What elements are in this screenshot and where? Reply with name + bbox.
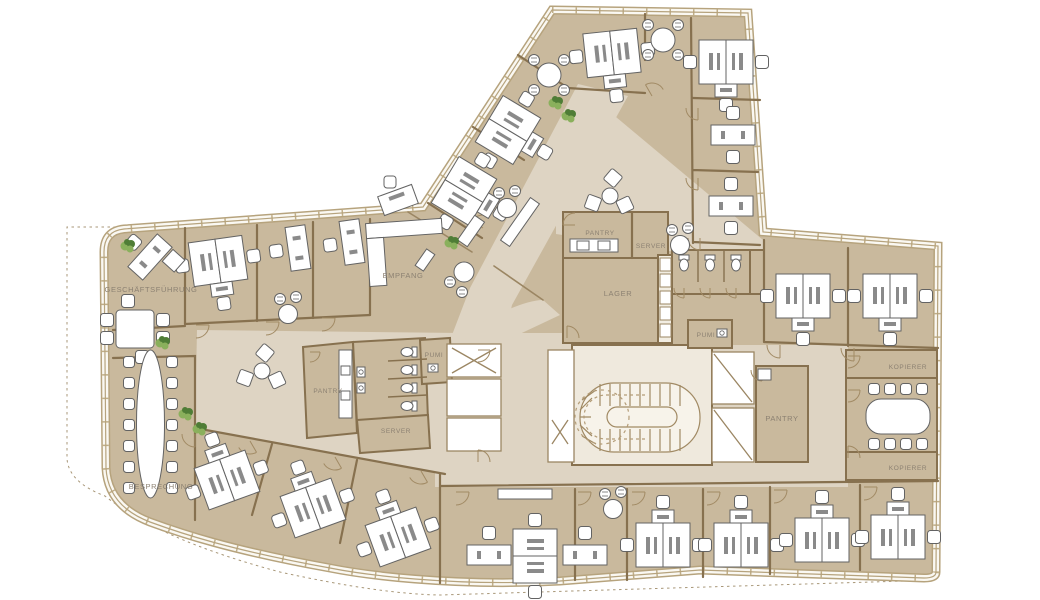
room-label-server-lower: SERVER xyxy=(381,428,411,435)
chair xyxy=(901,384,912,395)
monitor-icon xyxy=(657,515,669,519)
chair xyxy=(917,384,928,395)
monitor-icon xyxy=(717,53,720,70)
monitor-icon xyxy=(884,322,896,326)
stool xyxy=(643,20,654,31)
monitor-icon xyxy=(741,131,745,139)
chair xyxy=(727,151,740,164)
chair xyxy=(735,496,748,509)
toilet-icon xyxy=(705,255,715,271)
toilet-icon xyxy=(401,383,417,393)
toilet-icon xyxy=(401,401,417,411)
stool xyxy=(667,225,678,236)
monitor-icon xyxy=(754,537,758,554)
monitor-icon xyxy=(669,537,672,554)
chair xyxy=(892,488,905,501)
monitor-icon xyxy=(709,53,713,70)
staircase xyxy=(575,383,700,452)
pantry-cabinet xyxy=(758,369,771,380)
stool xyxy=(291,292,302,303)
sink-icon xyxy=(357,383,365,393)
monitor-icon xyxy=(527,539,544,543)
chair xyxy=(869,439,880,450)
chair xyxy=(101,332,114,345)
chair xyxy=(124,441,135,452)
monitor-icon xyxy=(892,507,904,511)
chair xyxy=(833,290,846,303)
room-shaft-upper xyxy=(750,250,764,294)
room-lager xyxy=(563,258,658,343)
chair xyxy=(246,249,261,264)
chair xyxy=(101,314,114,327)
sink-icon xyxy=(717,329,727,337)
duct-cells xyxy=(660,258,671,337)
chair xyxy=(856,531,869,544)
chair xyxy=(167,378,178,389)
chair xyxy=(727,107,740,120)
chair xyxy=(122,295,135,308)
stool xyxy=(616,487,627,498)
monitor-icon xyxy=(904,529,907,546)
chair xyxy=(384,176,396,188)
monitor-icon xyxy=(805,532,809,549)
monitor-icon xyxy=(816,287,820,304)
room-label-pumi-lower: PUMI xyxy=(425,352,444,359)
monitor-icon xyxy=(732,53,735,70)
toilet-icon xyxy=(401,347,417,357)
chair xyxy=(157,314,170,327)
toilet-icon xyxy=(401,365,417,375)
monitor-icon xyxy=(646,537,650,554)
monitor-icon xyxy=(881,529,885,546)
chair xyxy=(483,527,496,540)
room-label-pantry-right: PANTRY xyxy=(765,414,798,423)
monitor-icon xyxy=(676,537,680,554)
stool xyxy=(510,186,521,197)
room-label-pantry-lower: PANTRY xyxy=(313,388,342,395)
chair xyxy=(884,333,897,346)
stool xyxy=(275,294,286,305)
stool xyxy=(600,489,611,500)
chair xyxy=(217,296,232,311)
floor-plan-canvas: GESCHÄFTSFÜHRUNG EMPFANG BESPRECHUNG PAN… xyxy=(0,0,1040,600)
chair xyxy=(920,290,933,303)
monitor-icon xyxy=(903,287,907,304)
room-label-pumi-upper: PUMI xyxy=(697,332,716,339)
toilet-icon xyxy=(679,255,689,271)
monitor-icon xyxy=(739,53,743,70)
chair xyxy=(848,290,861,303)
chair xyxy=(529,514,542,527)
chair xyxy=(124,399,135,410)
monitor-icon xyxy=(527,569,544,573)
floor-plan-page: GESCHÄFTSFÜHRUNG EMPFANG BESPRECHUNG PAN… xyxy=(0,0,1040,600)
chair xyxy=(167,441,178,452)
chair xyxy=(885,384,896,395)
chair xyxy=(124,420,135,431)
monitor-icon xyxy=(477,551,481,559)
room-label-geschaeftsfuehrung: GESCHÄFTSFÜHRUNG xyxy=(105,285,198,294)
monitor-icon xyxy=(816,510,828,514)
room-label-kopierer-top: KOPIERER xyxy=(889,364,927,371)
monitor-icon xyxy=(896,287,899,304)
monitor-icon xyxy=(497,551,501,559)
stool xyxy=(494,188,505,199)
sink-icon xyxy=(357,367,365,377)
chair xyxy=(725,178,738,191)
monitor-icon xyxy=(809,287,812,304)
stool xyxy=(529,85,540,96)
stool xyxy=(445,277,456,288)
sideboard xyxy=(498,489,552,499)
chair xyxy=(529,586,542,599)
chair xyxy=(124,462,135,473)
stool xyxy=(559,55,570,66)
chair xyxy=(621,539,634,552)
chair xyxy=(579,527,592,540)
monitor-icon xyxy=(786,287,790,304)
monitor-icon xyxy=(719,202,723,210)
monitor-icon xyxy=(881,287,884,304)
monitor-icon xyxy=(797,322,809,326)
sink-icon xyxy=(428,364,438,372)
room-label-kopierer-bottom: KOPIERER xyxy=(889,465,927,472)
monitor-icon xyxy=(739,202,743,210)
chair xyxy=(901,439,912,450)
pantry-counter xyxy=(339,350,352,418)
room-label-pantry-upper: PANTRY xyxy=(585,230,614,237)
monitor-icon xyxy=(911,529,915,546)
pantry-counter xyxy=(570,239,618,252)
chair xyxy=(167,399,178,410)
chair xyxy=(167,357,178,368)
stool xyxy=(529,55,540,66)
chair xyxy=(167,420,178,431)
chair xyxy=(269,244,284,259)
stool xyxy=(673,50,684,61)
monitor-icon xyxy=(873,287,877,304)
monitor-icon xyxy=(721,131,725,139)
toilet-icon xyxy=(731,255,741,271)
room-label-empfang: EMPFANG xyxy=(383,271,424,280)
monitor-icon xyxy=(732,537,735,554)
stool xyxy=(643,50,654,61)
chair xyxy=(761,290,774,303)
chair xyxy=(124,378,135,389)
monitor-icon xyxy=(747,537,750,554)
room-label-server-upper: SERVER xyxy=(636,243,666,250)
chair xyxy=(684,56,697,69)
chair xyxy=(928,531,941,544)
chair xyxy=(725,222,738,235)
monitor-icon xyxy=(828,532,831,549)
monitor-icon xyxy=(735,515,747,519)
stool xyxy=(559,85,570,96)
chair xyxy=(657,496,670,509)
room-label-besprechung: BESPRECHUNG xyxy=(129,482,194,491)
monitor-icon xyxy=(724,537,728,554)
chair xyxy=(609,89,623,103)
chair xyxy=(917,439,928,450)
monitor-icon xyxy=(794,287,797,304)
monitor-icon xyxy=(573,551,577,559)
monitor-icon xyxy=(527,547,544,550)
monitor-icon xyxy=(813,532,816,549)
chair xyxy=(167,462,178,473)
chair xyxy=(756,56,769,69)
stool xyxy=(673,20,684,31)
monitor-icon xyxy=(527,562,544,565)
monitor-icon xyxy=(654,537,657,554)
chair xyxy=(797,333,810,346)
monitor-icon xyxy=(593,551,597,559)
chair xyxy=(885,439,896,450)
chair xyxy=(816,491,829,504)
chair xyxy=(323,238,338,253)
chair xyxy=(699,539,712,552)
chair xyxy=(780,534,793,547)
stool xyxy=(457,287,468,298)
chair xyxy=(124,357,135,368)
chair xyxy=(569,50,583,64)
monitor-icon xyxy=(889,529,892,546)
room-label-lager: LAGER xyxy=(604,289,632,298)
monitor-icon xyxy=(835,532,839,549)
monitor-icon xyxy=(720,88,732,92)
stool xyxy=(683,223,694,234)
chair xyxy=(869,384,880,395)
